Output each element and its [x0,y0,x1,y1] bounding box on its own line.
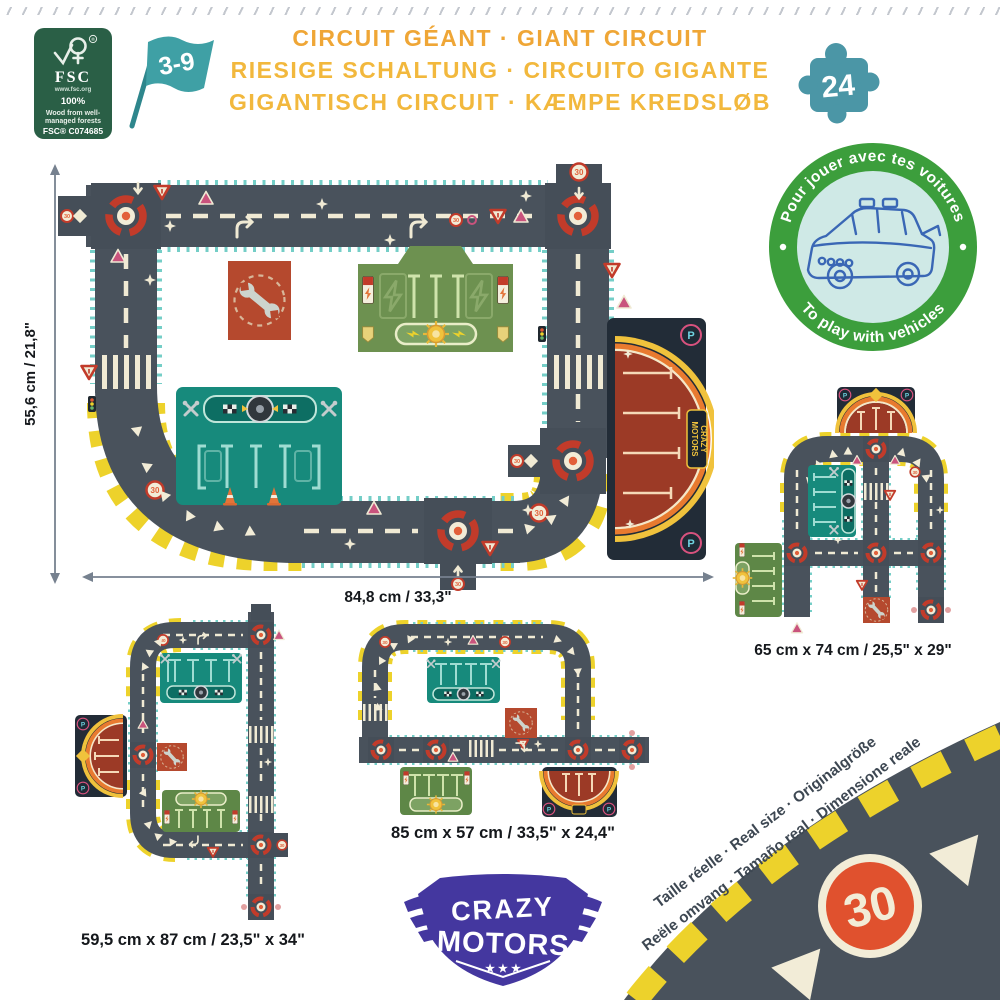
garage-station [160,653,242,703]
fsc-percent: 100% [61,96,86,107]
perforation-line [0,7,1000,15]
width-dimension-label: 84,8 cm / 33,3" [344,589,451,606]
variant-left-size-label: 59,5 cm x 87 cm / 23,5" x 34" [58,931,328,950]
charging-station [358,246,513,352]
fsc-license: FSC® C074685 [43,126,103,136]
fsc-desc-2: managed forests [45,118,101,125]
parking-garage [837,387,915,433]
fsc-brand: FSC [55,69,91,86]
width-dimension: 84,8 cm / 33,3" [78,560,718,606]
charging-station [733,543,782,617]
crazy-motors-logo: CRAZY MOTORS ★ ★ ★ [396,860,610,994]
age-flag: 3-9 [116,30,218,132]
parking-garage [541,767,617,817]
play-with-vehicles-badge: Pour jouer avec tes voitures To play wit… [756,130,990,364]
garage-station [808,465,856,537]
repair-tile [505,708,537,738]
main-circuit-illustration: CRAZY MOTORS [58,158,714,594]
page-title-line3: GIGANTISCH CIRCUIT · KÆMPE KREDSLØB [205,86,795,118]
logo-word-motors: MOTORS [436,926,570,963]
variant-left-illustration [63,602,299,932]
repair-tile [228,261,291,340]
packaging-sheet: P 30 30 ® FSC www.fsc.org 100% Wood from… [0,0,1000,1000]
charging-station [400,767,472,815]
logo-word-crazy: CRAZY [450,891,554,926]
repair-tile [157,743,187,771]
pieces-count-label: 24 [820,69,856,105]
logo-stars: ★ ★ ★ [485,963,521,975]
fsc-label: ® FSC www.fsc.org 100% Wood from well- m… [33,27,113,140]
parking-brand-bottom: MOTORS [690,422,699,458]
garage-station [426,657,500,703]
page-title-line2: RIESIGE SCHALTUNG · CIRCUITO GIGANTE [205,54,795,86]
garage-station [176,387,342,506]
variant-middle-illustration [353,612,655,824]
title-block: CIRCUIT GÉANT · GIANT CIRCUIT RIESIGE SC… [205,22,795,118]
speed-30-sign-large: 30 [818,854,922,958]
parking-brand-top: CRAZY [699,425,708,453]
parking-garage [75,715,127,797]
variant-middle-size-label: 85 cm x 57 cm / 33,5" x 24,4" [368,824,638,843]
height-dimension: 55,6 cm / 21,8" [22,162,72,586]
real-size-sample: 30 Taille réelle · Real size · Originalg… [618,688,1000,1000]
fsc-url: www.fsc.org [54,86,92,93]
fsc-desc-1: Wood from well- [46,110,101,117]
page-title: CIRCUIT GÉANT · GIANT CIRCUIT [205,22,795,54]
variant-right-size-label: 65 cm x 74 cm / 25,5" x 29" [718,642,988,660]
height-dimension-label: 55,6 cm / 21,8" [22,322,39,426]
charging-station [162,790,240,832]
piece-count-badge: 24 [790,30,886,124]
repair-tile [863,597,890,623]
parking-garage: CRAZY MOTORS [607,318,714,560]
variant-right-illustration [730,380,966,636]
